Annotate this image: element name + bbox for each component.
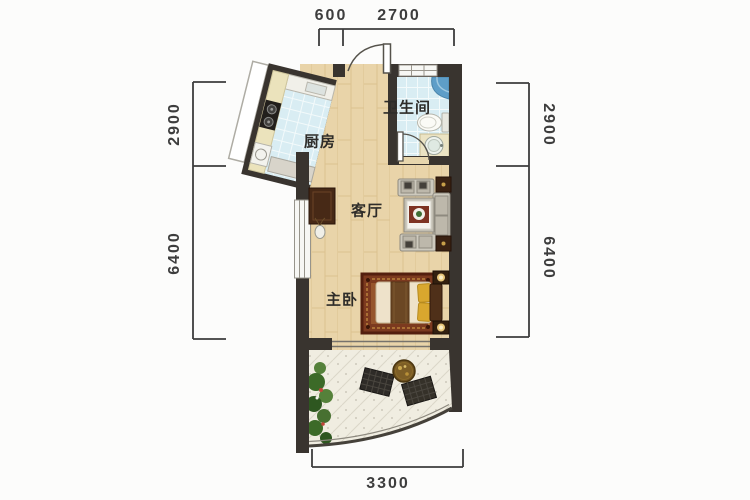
bathroom-label: 卫生间 (383, 97, 431, 118)
master-bedroom-label: 主卧 (326, 289, 358, 310)
dim-right-2900: 2900 (539, 103, 557, 147)
dim-top-600: 600 (315, 7, 348, 25)
pillow (417, 303, 431, 322)
window-top (399, 65, 437, 76)
tea-tray-icon (393, 360, 415, 382)
dim-right-6400: 6400 (539, 236, 557, 280)
headboard (430, 284, 442, 321)
kitchen-label: 厨房 (304, 131, 336, 152)
floor-plan: 600 2700 2900 6400 2900 6400 3300 厨房 卫生间… (0, 0, 750, 500)
vase-icon (315, 226, 325, 239)
dim-left-2900: 2900 (166, 102, 184, 146)
dim-top-2700: 2700 (377, 7, 421, 25)
balcony (306, 350, 452, 446)
window-left (295, 200, 311, 278)
sofa-group (398, 177, 451, 251)
coffee-table (404, 198, 434, 232)
dim-left-6400: 6400 (166, 231, 184, 275)
living-room-label: 客厅 (351, 200, 383, 221)
bed-group (362, 271, 449, 334)
pillow (417, 284, 431, 303)
floor-plan-drawing (0, 0, 750, 500)
dim-bottom-3300: 3300 (366, 475, 410, 493)
